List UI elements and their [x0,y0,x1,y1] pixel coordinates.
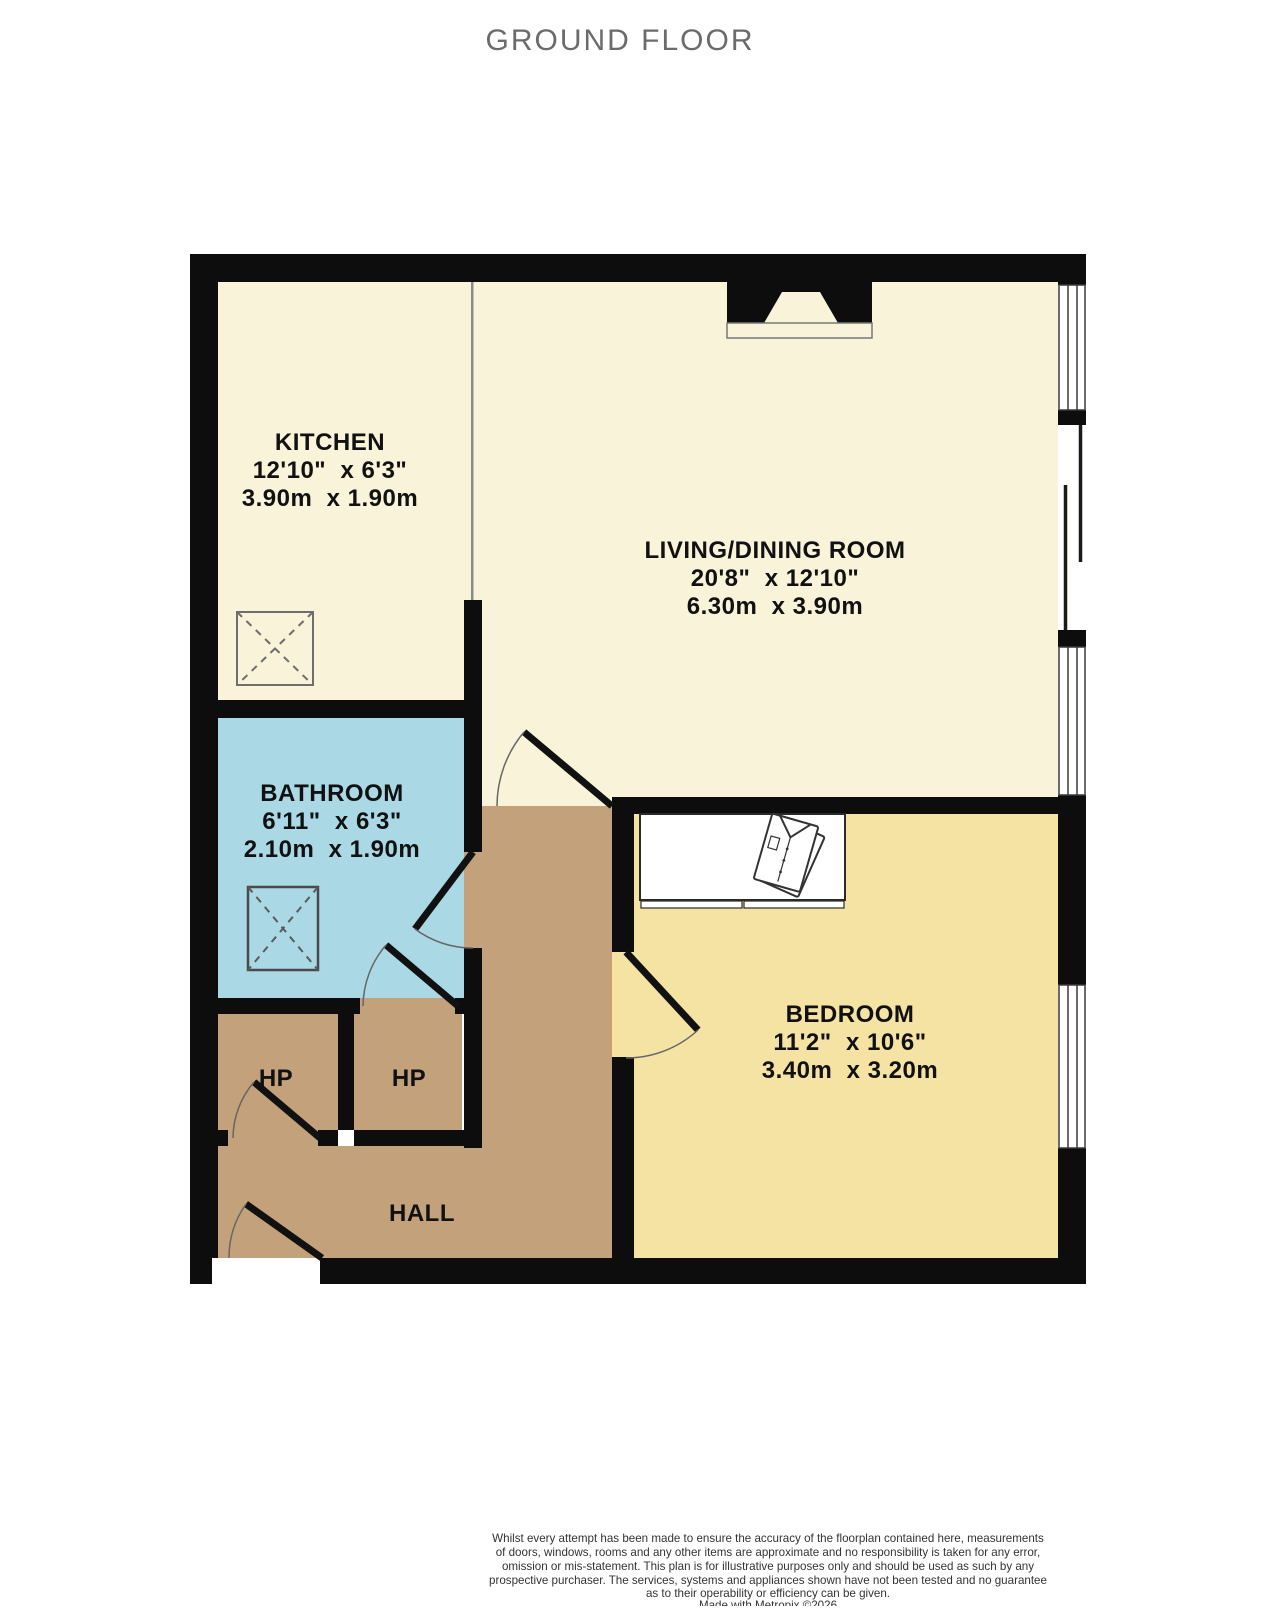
wall-kitchen-divider-stub [464,600,482,852]
wall-right-seg4 [1058,795,1086,985]
kitchen-name-label: KITCHEN [275,429,385,456]
wall-hp-divider [338,1014,354,1130]
disclaimer-line-3: omission or mis-statement. This plan is … [502,1560,1034,1573]
window-living-2 [1059,647,1085,795]
bathroom-metric-label: 2.10m x 1.90m [244,836,420,863]
disclaimer-line-6: Made with Metropix ©2026 [699,1599,837,1606]
sliding-door [1066,425,1081,630]
disclaimer-line-4: prospective purchaser. The services, sys… [489,1574,1047,1587]
disclaimer: Whilst every attempt has been made to en… [489,1532,1047,1606]
living-imperial-label: 20'8" x 12'10" [691,565,859,592]
wall-hall-bedroom-lower [612,1057,634,1258]
bedroom-name-label: BEDROOM [786,1001,915,1028]
bedroom-imperial-label: 11'2" x 10'6" [773,1029,926,1056]
wall-bottom-main [320,1258,1086,1284]
wall-hp-left-bottom-b [318,1130,338,1146]
wall-bathroom-right-lower [464,948,482,1148]
bedroom-doorway-floor [612,952,634,1057]
hp-left-doorway-floor [228,1130,318,1146]
hp-left-label: HP [259,1065,293,1092]
wall-bedroom-top [612,797,1058,814]
wall-hp-left-bottom-a [218,1130,228,1146]
living-metric-label: 6.30m x 3.90m [687,593,863,620]
wall-bathroom-bottom [218,998,360,1014]
wall-right-seg3 [1058,630,1086,647]
wall-bottom-left-segment [190,1258,212,1284]
hearth [727,323,872,338]
floorplan-page: GROUND FLOOR KITCHEN 12'10" x 6'3" 3.90m… [0,0,1280,1606]
bedroom-metric-label: 3.40m x 3.20m [762,1057,938,1084]
bathroom-doorway-floor [464,852,482,948]
kitchen-metric-label: 3.90m x 1.90m [242,485,418,512]
wall-kitchen-bottom [218,700,464,718]
hp-right-label: HP [392,1065,426,1092]
wall-right-seg1 [1058,254,1086,285]
disclaimer-line-1: Whilst every attempt has been made to en… [492,1532,1044,1545]
living-name-label: LIVING/DINING ROOM [645,537,906,564]
living-doorway-floor [472,797,612,806]
bathroom-name-label: BATHROOM [260,780,404,807]
wall-right-seg2 [1058,410,1086,425]
window-bedroom [1059,985,1085,1148]
bathroom-imperial-label: 6'11" x 6'3" [262,808,401,835]
wall-top [190,254,1086,282]
page-title: GROUND FLOOR [485,24,754,57]
wall-left [190,254,218,1284]
entrance-opening [212,1258,320,1284]
disclaimer-line-2: of doors, windows, rooms and any other i… [496,1546,1041,1559]
floorplan-canvas: GROUND FLOOR KITCHEN 12'10" x 6'3" 3.90m… [0,0,1280,1606]
kitchen-living-divider-line [471,282,474,600]
wardrobe-slider-left [641,901,742,908]
hp-right-doorway-floor [360,998,455,1014]
wall-hp-right-bottom [354,1130,482,1146]
hall-label: HALL [389,1200,455,1227]
wall-hall-bedroom-upper [612,797,634,952]
kitchen-imperial-label: 12'10" x 6'3" [253,457,408,484]
wall-right-seg5 [1058,1148,1086,1284]
wardrobe-slider-right [744,901,844,908]
window-living-1 [1059,285,1085,410]
